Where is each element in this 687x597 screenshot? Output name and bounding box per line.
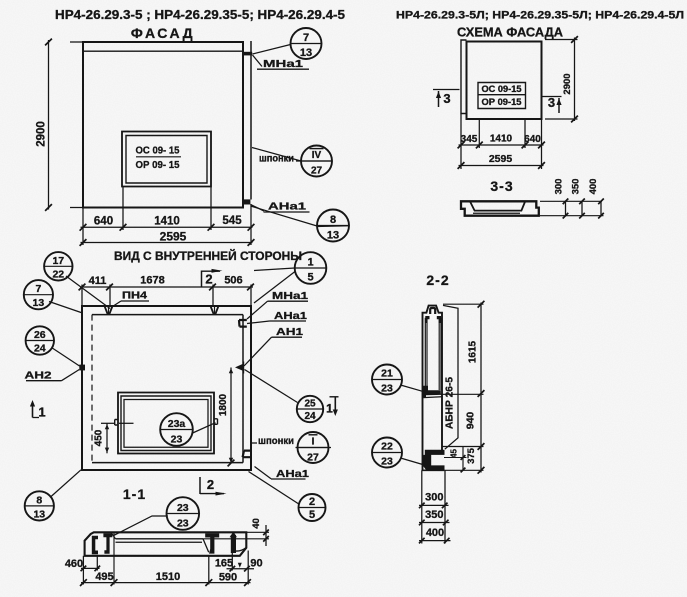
svg-text:506: 506 <box>224 275 242 287</box>
svg-text:165: 165 <box>215 558 233 570</box>
svg-text:2900: 2900 <box>562 73 573 94</box>
svg-text:13: 13 <box>327 229 339 241</box>
svg-text:375: 375 <box>466 447 477 464</box>
svg-text:22: 22 <box>52 268 64 280</box>
svg-text:АНа1: АНа1 <box>276 468 309 480</box>
svg-text:АНа1: АНа1 <box>268 201 306 213</box>
svg-text:90: 90 <box>250 558 262 570</box>
svg-text:23: 23 <box>177 518 189 530</box>
svg-text:НР4-26.29.3-5 ; НР4-26.29.35-5: НР4-26.29.3-5 ; НР4-26.29.35-5; НР4-26.2… <box>55 8 345 22</box>
svg-text:1510: 1510 <box>156 571 180 583</box>
svg-text:411: 411 <box>89 275 107 287</box>
svg-text:МНа1: МНа1 <box>263 58 303 70</box>
svg-text:ОР 09- 15: ОР 09- 15 <box>136 159 180 171</box>
svg-text:17: 17 <box>52 255 64 267</box>
svg-text:7: 7 <box>35 283 41 295</box>
svg-text:23: 23 <box>171 434 183 446</box>
svg-text:25: 25 <box>304 399 316 410</box>
svg-text:590: 590 <box>219 572 237 584</box>
svg-text:1: 1 <box>326 402 333 416</box>
svg-text:шпонки: шпонки <box>258 436 294 447</box>
svg-text:13: 13 <box>33 508 45 520</box>
svg-text:2: 2 <box>309 496 315 508</box>
svg-text:2: 2 <box>207 477 214 492</box>
svg-text:7: 7 <box>303 32 309 44</box>
svg-text:ОС 09- 15: ОС 09- 15 <box>136 145 180 157</box>
svg-text:1410: 1410 <box>154 216 180 228</box>
svg-text:23: 23 <box>177 502 189 514</box>
svg-text:400: 400 <box>426 527 444 539</box>
svg-text:460: 460 <box>65 558 83 570</box>
svg-text:АНа1: АНа1 <box>274 310 307 322</box>
svg-text:24: 24 <box>304 411 316 422</box>
svg-text:940: 940 <box>465 412 477 430</box>
svg-text:5: 5 <box>309 509 315 521</box>
svg-text:2: 2 <box>205 272 212 287</box>
svg-text:МНа1: МНа1 <box>272 290 308 302</box>
svg-text:СХЕМА ФАСАДА: СХЕМА ФАСАДА <box>457 25 564 40</box>
svg-text:495: 495 <box>95 571 113 583</box>
svg-text:2-2: 2-2 <box>426 272 449 288</box>
svg-text:640: 640 <box>94 216 113 228</box>
svg-text:1: 1 <box>307 257 313 269</box>
svg-text:НР4-26.29.3-5Л; НР4-26.29.35-5: НР4-26.29.3-5Л; НР4-26.29.35-5Л; НР4-26.… <box>396 10 684 22</box>
svg-text:2595: 2595 <box>160 230 187 244</box>
svg-text:26: 26 <box>34 329 46 341</box>
svg-text:АН2: АН2 <box>25 370 52 382</box>
svg-text:350: 350 <box>571 179 582 195</box>
svg-text:27: 27 <box>311 166 323 177</box>
svg-text:ФАСАД: ФАСАД <box>131 25 195 41</box>
svg-text:27: 27 <box>307 452 319 464</box>
svg-text:300: 300 <box>425 492 443 504</box>
svg-text:23: 23 <box>381 383 393 395</box>
svg-text:1615: 1615 <box>468 340 479 363</box>
svg-text:1-1: 1-1 <box>123 486 146 502</box>
svg-text:8: 8 <box>330 214 336 226</box>
svg-text:2900: 2900 <box>36 121 48 147</box>
svg-text:400: 400 <box>588 179 599 195</box>
svg-text:АН1: АН1 <box>276 326 303 338</box>
svg-text:8: 8 <box>36 494 42 506</box>
svg-text:ПН4: ПН4 <box>122 290 147 302</box>
svg-text:5: 5 <box>307 272 313 284</box>
svg-text:300: 300 <box>554 179 565 195</box>
svg-text:3: 3 <box>548 95 555 110</box>
svg-text:450: 450 <box>94 429 105 446</box>
svg-text:640: 640 <box>524 134 541 145</box>
svg-text:24: 24 <box>34 343 46 355</box>
svg-text:45: 45 <box>450 449 459 458</box>
svg-text:3-3: 3-3 <box>490 178 513 194</box>
svg-text:22: 22 <box>381 441 393 453</box>
svg-text:I: I <box>312 435 315 447</box>
svg-text:1: 1 <box>38 405 45 420</box>
svg-text:13: 13 <box>33 297 45 309</box>
svg-text:ВИД С ВНУТРЕННЕЙ СТОРОНЫ: ВИД С ВНУТРЕННЕЙ СТОРОНЫ <box>114 248 302 263</box>
svg-text:345: 345 <box>461 134 478 145</box>
svg-text:1410: 1410 <box>490 134 513 145</box>
svg-text:1800: 1800 <box>218 393 229 416</box>
svg-text:АБНР 26-5: АБНР 26-5 <box>444 377 456 429</box>
svg-text:40: 40 <box>251 518 262 529</box>
svg-text:23а: 23а <box>168 418 186 430</box>
svg-text:2595: 2595 <box>489 153 513 165</box>
svg-text:21: 21 <box>381 368 393 380</box>
svg-text:350: 350 <box>425 509 443 521</box>
svg-text:ОС 09-15: ОС 09-15 <box>482 84 522 94</box>
svg-text:шпонки: шпонки <box>259 154 294 165</box>
svg-text:23: 23 <box>381 456 393 468</box>
svg-text:3: 3 <box>443 91 450 106</box>
svg-text:13: 13 <box>300 47 312 59</box>
svg-text:1678: 1678 <box>140 275 164 287</box>
svg-text:IV: IV <box>312 150 322 161</box>
svg-text:ОР 09-15: ОР 09-15 <box>482 97 522 107</box>
svg-text:545: 545 <box>222 215 242 227</box>
